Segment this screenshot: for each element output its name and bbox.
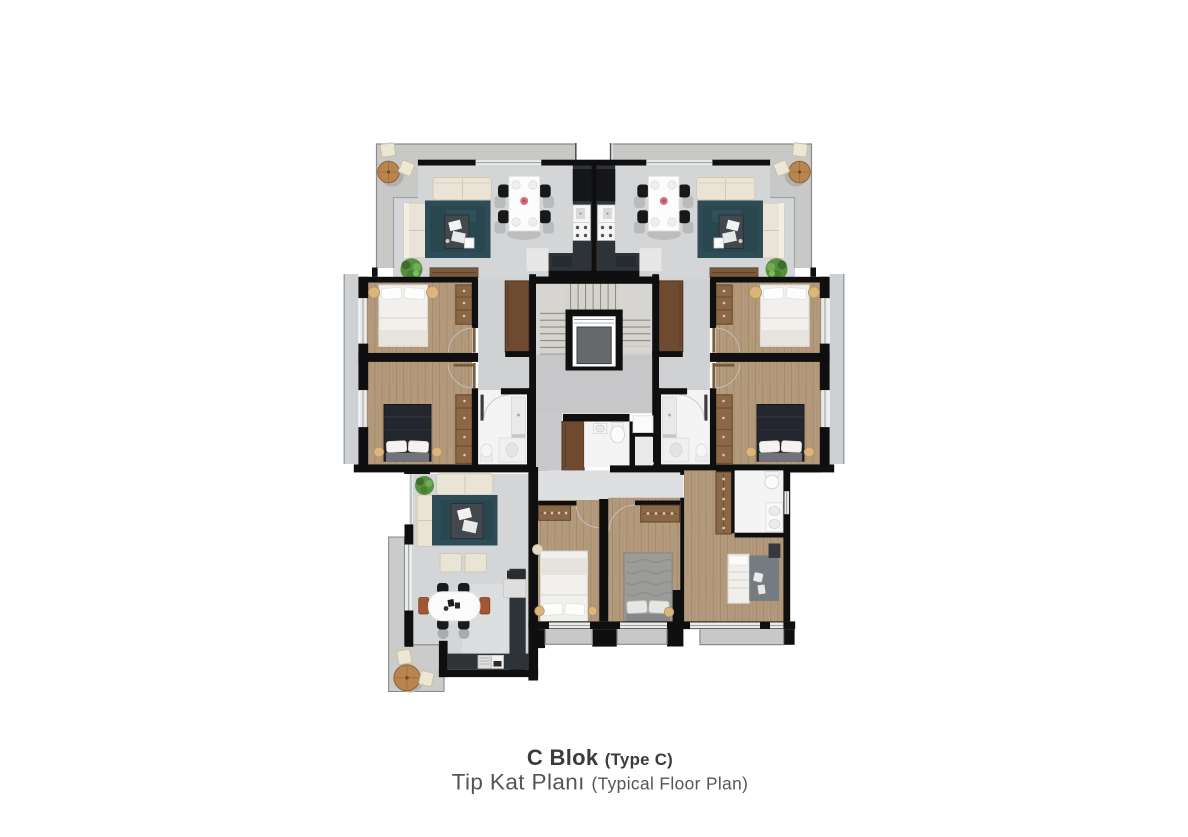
svg-text:Tip Kat Planı (Typical Floor P: Tip Kat Planı (Typical Floor Plan) [452,770,749,795]
